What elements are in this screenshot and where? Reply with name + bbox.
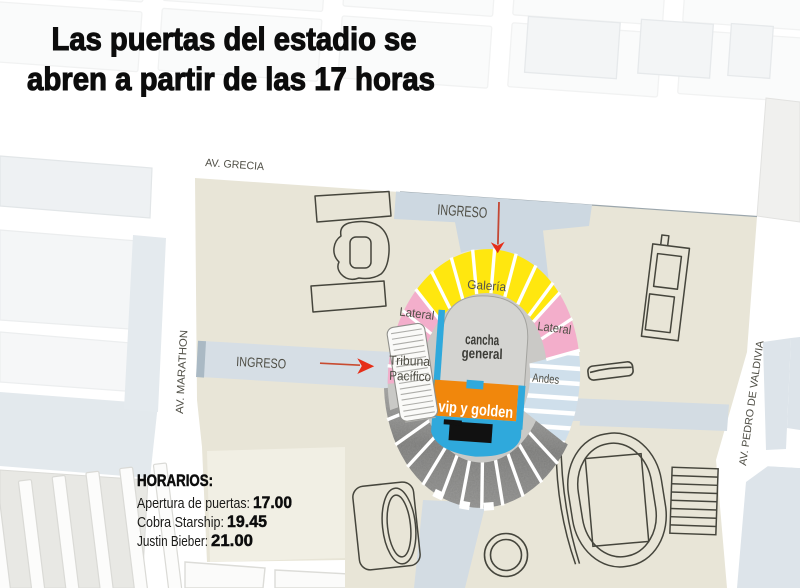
svg-text:Galería: Galería xyxy=(467,278,507,295)
svg-text:abren a partir de las 17 horas: abren a partir de las 17 horas xyxy=(27,61,435,97)
svg-text:Justin Bieber:: Justin Bieber: xyxy=(137,533,208,550)
svg-text:21.00: 21.00 xyxy=(211,531,253,550)
svg-text:Las puertas del estadio se: Las puertas del estadio se xyxy=(52,21,417,57)
svg-text:HORARIOS:: HORARIOS: xyxy=(137,472,213,490)
svg-text:Andes: Andes xyxy=(532,371,560,387)
svg-text:17.00: 17.00 xyxy=(253,493,292,512)
svg-text:INGRESO: INGRESO xyxy=(236,354,287,372)
svg-text:Pacífico: Pacífico xyxy=(389,368,431,384)
svg-text:INGRESO: INGRESO xyxy=(437,202,488,222)
svg-text:19.45: 19.45 xyxy=(227,512,267,531)
svg-text:Apertura de puertas:: Apertura de puertas: xyxy=(137,495,250,512)
svg-text:general: general xyxy=(461,346,503,363)
svg-text:Tribuna: Tribuna xyxy=(389,353,431,369)
svg-text:Cobra Starship:: Cobra Starship: xyxy=(137,514,224,531)
